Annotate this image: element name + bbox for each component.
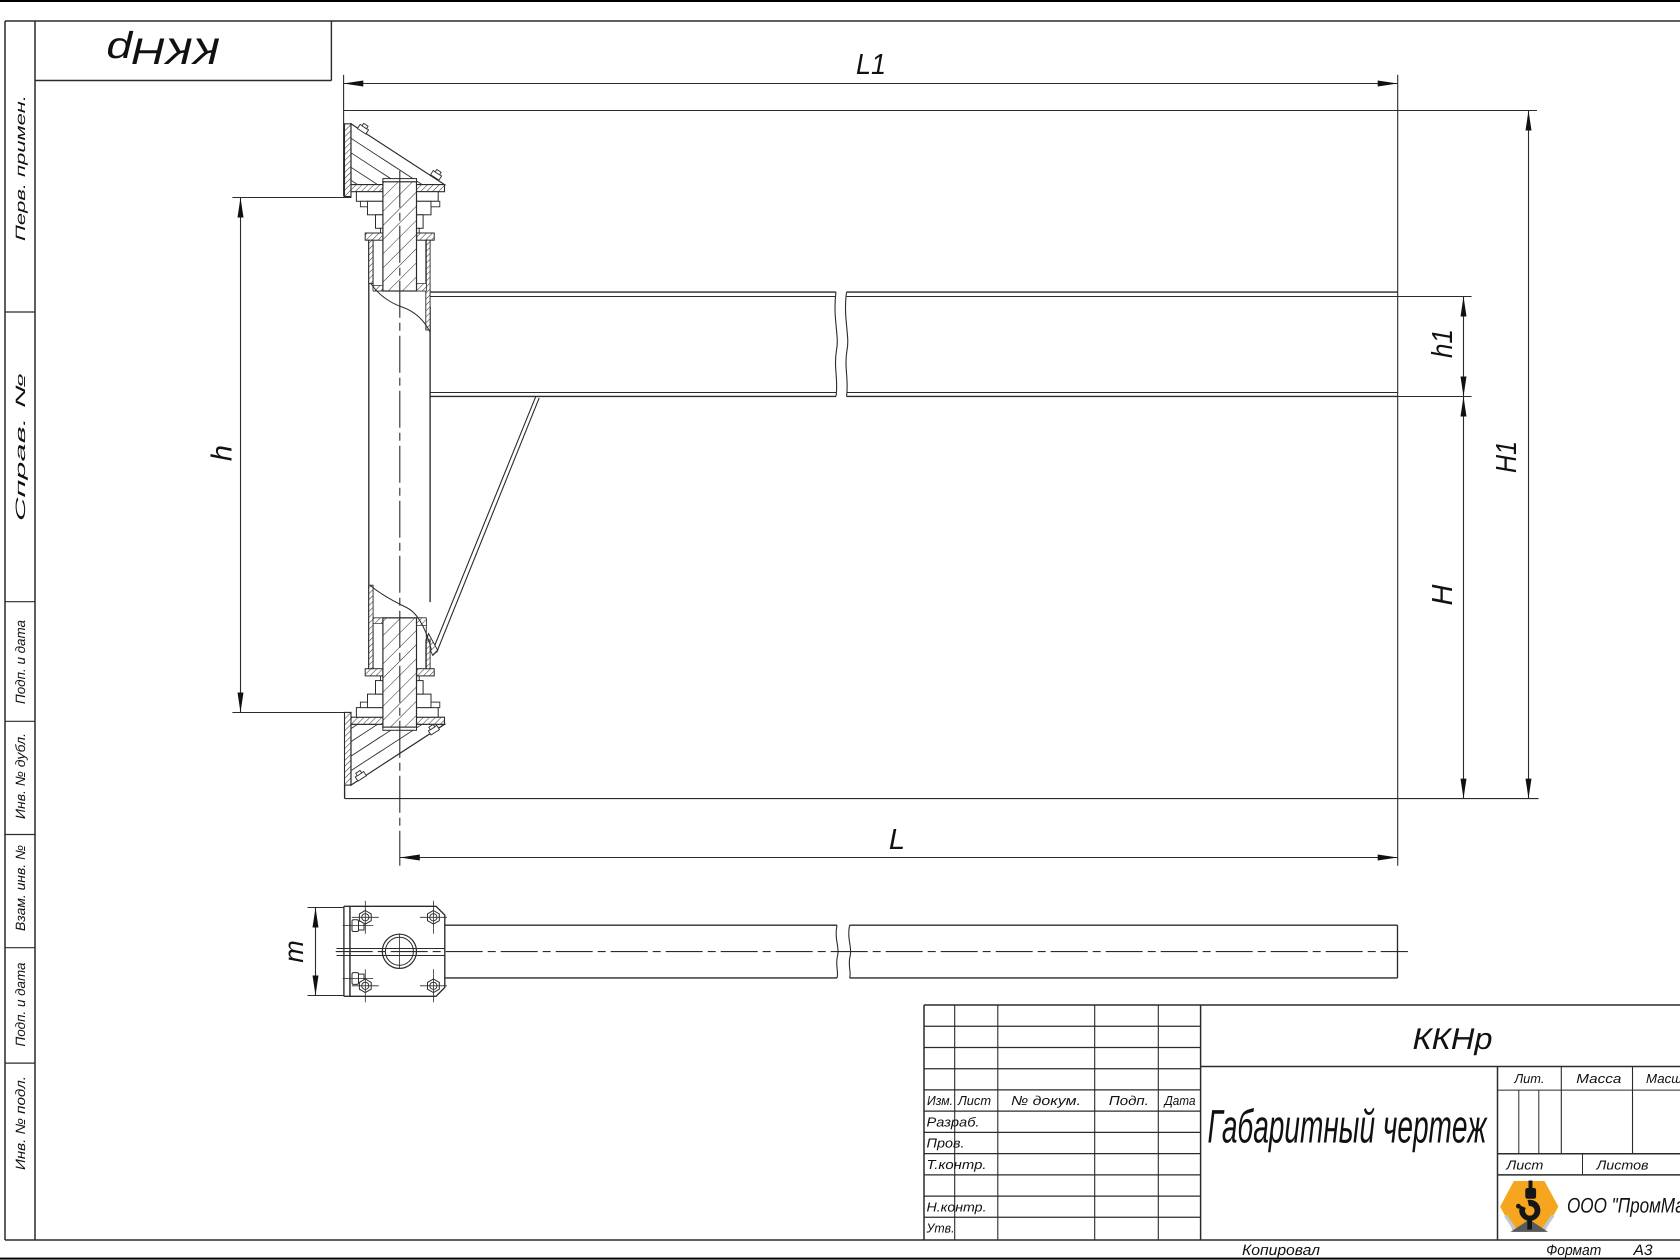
svg-text:Формат: Формат — [1546, 1242, 1601, 1259]
svg-text:ККНр: ККНр — [1413, 1023, 1493, 1056]
svg-text:m: m — [279, 940, 309, 963]
svg-text:L1: L1 — [856, 49, 886, 81]
svg-text:Подп.: Подп. — [1109, 1093, 1149, 1108]
svg-text:Лист: Лист — [957, 1093, 991, 1108]
svg-text:Взам. инв. №: Взам. инв. № — [13, 845, 28, 931]
svg-text:Разраб.: Разраб. — [927, 1115, 980, 1130]
svg-text:Масштаб: Масштаб — [1646, 1071, 1680, 1086]
svg-text:Дата: Дата — [1163, 1093, 1196, 1108]
svg-text:Справ. №: Справ. № — [13, 372, 28, 521]
svg-text:Лист: Лист — [1505, 1157, 1543, 1172]
svg-text:Лит.: Лит. — [1513, 1071, 1544, 1086]
svg-text:Инв. № подл.: Инв. № подл. — [13, 1076, 28, 1170]
svg-text:Масса: Масса — [1576, 1071, 1621, 1086]
svg-text:Перв. примен.: Перв. примен. — [13, 95, 28, 241]
svg-text:Подп. и дата: Подп. и дата — [13, 962, 28, 1046]
svg-text:Н.контр.: Н.контр. — [927, 1200, 987, 1215]
svg-text:H: H — [1427, 584, 1459, 605]
svg-text:h: h — [207, 445, 239, 461]
svg-text:H1: H1 — [1491, 441, 1523, 473]
svg-text:Изм.: Изм. — [927, 1093, 953, 1108]
svg-text:L: L — [889, 824, 905, 856]
svg-text:ООО "ПромМаш": ООО "ПромМаш" — [1567, 1195, 1680, 1218]
svg-text:№ докум.: № докум. — [1011, 1093, 1081, 1108]
svg-text:Пров.: Пров. — [927, 1136, 965, 1151]
svg-text:Листов: Листов — [1595, 1157, 1648, 1172]
svg-text:А3: А3 — [1632, 1242, 1653, 1259]
svg-text:Т.контр.: Т.контр. — [927, 1157, 987, 1172]
svg-text:Копировал: Копировал — [1242, 1242, 1321, 1259]
svg-text:Подп. и дата: Подп. и дата — [13, 620, 28, 704]
svg-text:Инв. № дубл.: Инв. № дубл. — [13, 733, 28, 819]
svg-text:h1: h1 — [1427, 329, 1459, 358]
svg-text:Габаритный чертеж: Габаритный чертеж — [1208, 1100, 1489, 1153]
svg-text:Утв.: Утв. — [926, 1221, 955, 1236]
svg-text:ККНр: ККНр — [107, 31, 221, 72]
